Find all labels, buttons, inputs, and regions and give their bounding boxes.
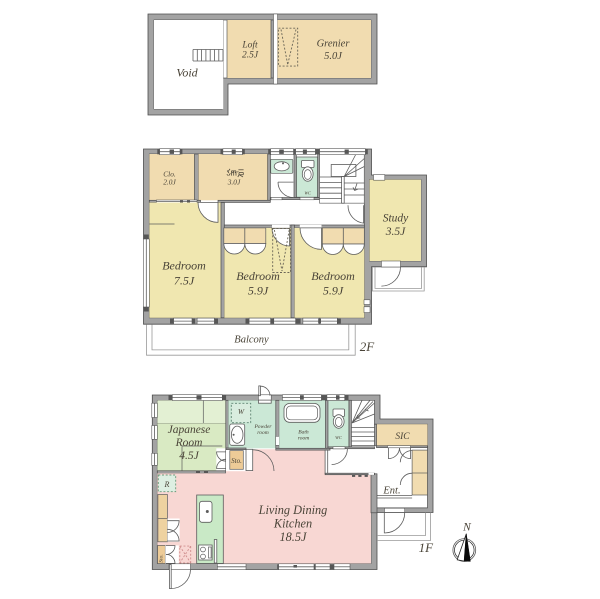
svg-text:5.9J: 5.9J [248,284,269,298]
svg-text:4.5J: 4.5J [179,450,199,462]
svg-text:Loft: Loft [241,40,258,51]
svg-text:Bedroom: Bedroom [236,269,280,283]
svg-text:Grenier: Grenier [317,39,351,50]
svg-text:Kitchen: Kitchen [273,517,312,531]
svg-text:Ent.: Ent. [382,486,400,497]
svg-text:W: W [238,407,245,416]
svg-text:N: N [462,522,472,534]
svg-text:WC: WC [304,191,312,196]
svg-text:2.5J: 2.5J [242,51,259,61]
svg-text:Living Dining: Living Dining [258,503,328,517]
svg-text:3.5J: 3.5J [385,226,406,238]
svg-text:room: room [298,435,309,441]
svg-text:18.5J: 18.5J [280,530,308,544]
svg-text:Sto.: Sto. [231,457,242,465]
svg-text:WC: WC [335,435,343,440]
svg-text:Study: Study [383,213,409,225]
svg-text:Void: Void [176,66,198,80]
svg-text:room: room [257,430,268,436]
svg-text:Bedroom: Bedroom [162,259,206,273]
svg-text:Japanese: Japanese [168,424,211,436]
svg-text:Bedroom: Bedroom [311,269,355,283]
svg-text:2F: 2F [360,339,376,354]
svg-text:1F: 1F [419,540,435,555]
svg-text:5.0J: 5.0J [324,51,343,62]
svg-text:5.9J: 5.9J [323,284,344,298]
svg-text:Sto.: Sto. [158,554,164,562]
svg-text:3.0J: 3.0J [227,178,241,187]
svg-text:7.5J: 7.5J [174,274,195,288]
svg-text:Balcony: Balcony [234,335,269,346]
svg-text:R: R [164,480,170,489]
svg-text:SIC: SIC [395,432,410,442]
svg-text:2.0J: 2.0J [163,178,176,187]
svg-text:Room: Room [175,437,203,449]
